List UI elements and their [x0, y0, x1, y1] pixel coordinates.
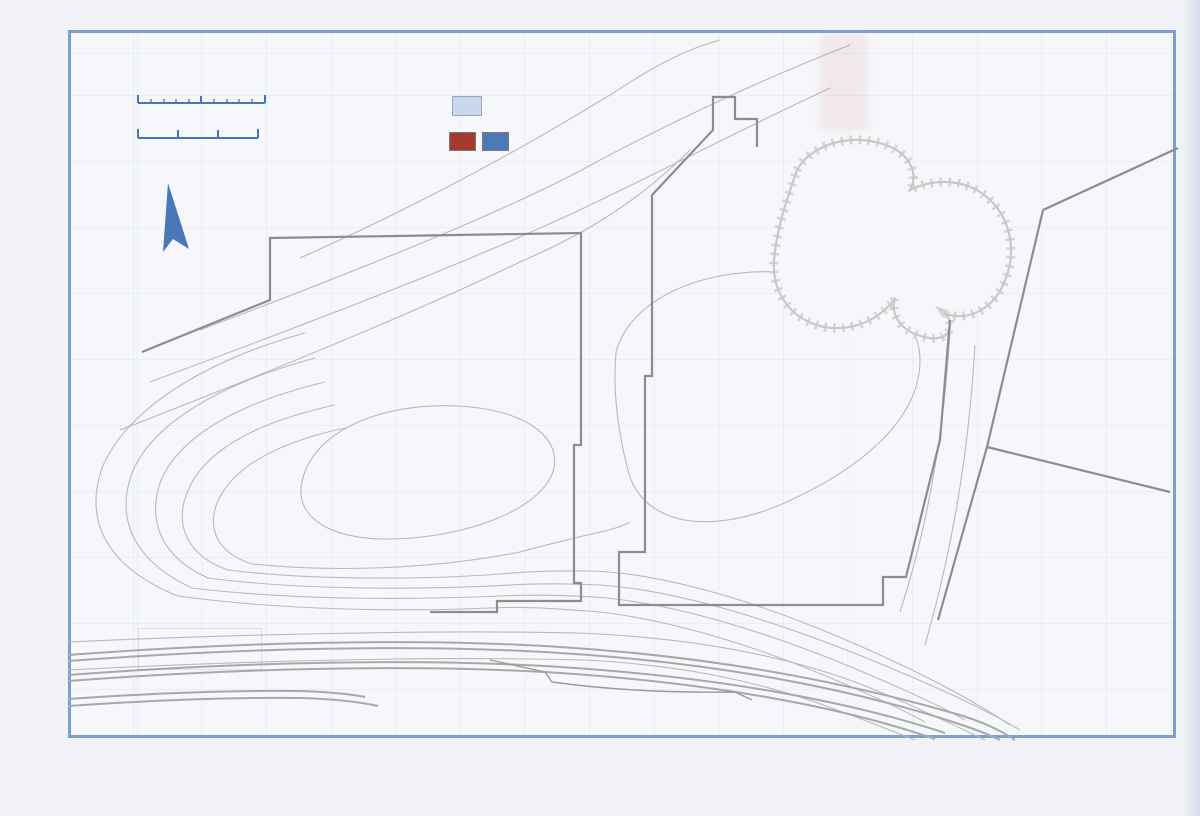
page-edge-shadow: [1182, 0, 1200, 816]
ghost-scalebar-showthrough: [138, 628, 262, 670]
loom-swatch: [452, 96, 482, 116]
ink-showthrough-smudge: [820, 35, 868, 130]
sfb-red-swatch: [449, 132, 476, 151]
sfb-blue-swatch: [482, 132, 509, 151]
scanned-map-page: [0, 0, 1200, 816]
